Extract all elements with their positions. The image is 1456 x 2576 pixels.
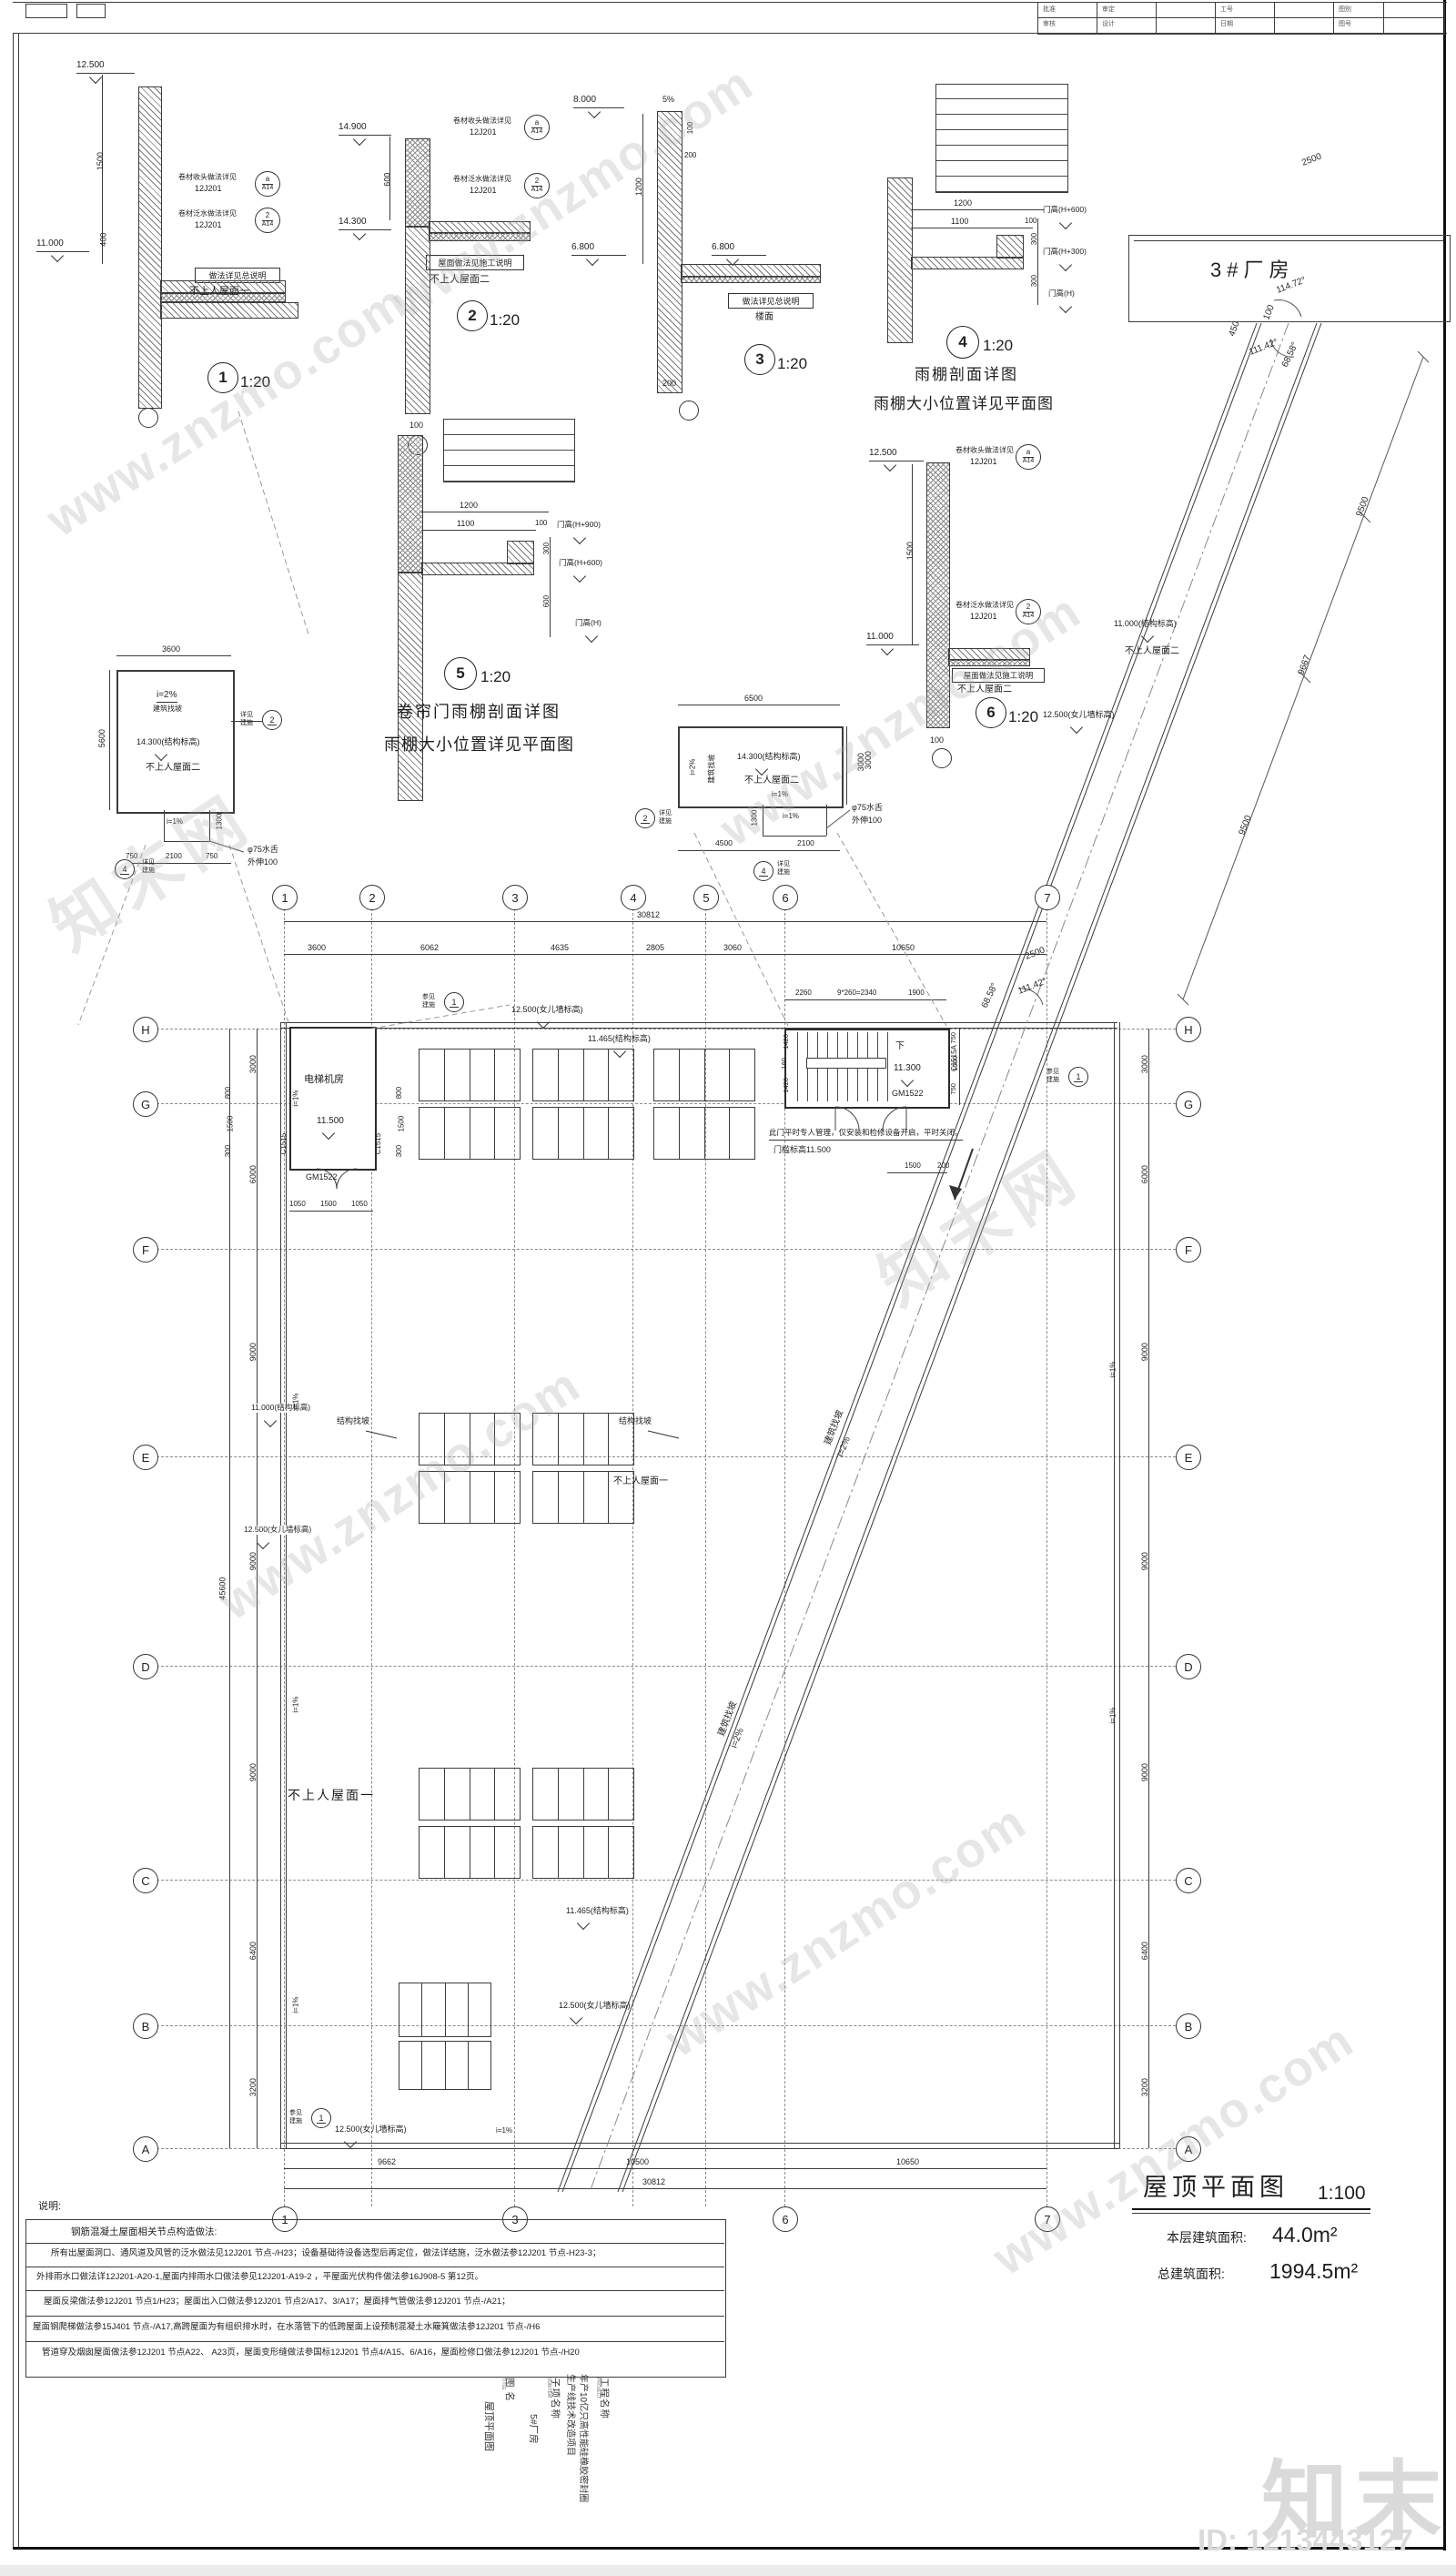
see-num: 2 <box>268 715 276 725</box>
door-tag: GM1522 <box>306 1172 338 1182</box>
dim: 6062 <box>420 943 439 952</box>
grid-label: H <box>141 1023 149 1037</box>
ref-bot: A14 <box>531 186 542 194</box>
wall-section <box>657 111 682 393</box>
grid-bubble-Cr: C <box>1176 1868 1201 1893</box>
dim: 1300 <box>750 810 758 827</box>
skylight <box>419 1471 521 1524</box>
door-note: 此门平时专人管理，仅安装和检修设备开启，平时关闭。 <box>769 1129 963 1141</box>
grid-label: 7 <box>1044 891 1050 905</box>
level-value: 14.900 <box>339 122 367 133</box>
stair-handrail <box>806 1058 886 1069</box>
skylight <box>419 1107 521 1160</box>
dim: 300 <box>1030 233 1038 245</box>
louver-wall <box>935 84 1068 193</box>
detail-ref-bubble: aA14 <box>1016 444 1041 470</box>
corridor-slope-val: i=2% <box>836 1435 853 1458</box>
drawing-sheet: 批准 审定 工号 图别 审核 设计 日期 图号 <box>0 0 1456 2576</box>
spout-label: 外伸100 <box>852 816 882 825</box>
spout-label: φ75水舌 <box>248 845 278 854</box>
detail-number: 1 <box>207 362 238 393</box>
dim: 100 <box>409 421 423 430</box>
detail-ref-bubble: aA14 <box>255 171 280 197</box>
drawing-title: 屋顶平面图 <box>1143 2174 1289 2202</box>
detail-see-bubble: 1 <box>1068 1067 1088 1087</box>
detail-number: 3 <box>744 344 775 375</box>
slope-value: i=1% <box>783 812 799 820</box>
dim: 9*260=2340 <box>837 989 876 997</box>
notes-subtitle: 钢筋混凝土屋面相关节点构造做法: <box>71 2226 217 2237</box>
line <box>421 512 549 512</box>
slope-value: i=1% <box>772 790 788 798</box>
see-arch: 建施 <box>777 869 790 877</box>
skylight <box>419 1826 521 1879</box>
level-mark-icon <box>1059 217 1072 229</box>
skylight <box>419 1049 521 1101</box>
level-mark-icon <box>573 532 586 544</box>
slope-value: i=1% <box>1108 1708 1117 1724</box>
parapet-wall <box>280 1022 281 2148</box>
note-text: 屋面做法见施工说明 <box>438 257 511 269</box>
line <box>712 255 766 256</box>
roof-label: 不上人屋面一 <box>189 286 249 298</box>
detail-see-bubble: 1 <box>444 992 464 1012</box>
parapet-wall <box>1119 1022 1120 2148</box>
level-mark-icon <box>1141 630 1154 643</box>
factory-label: 3#厂房 <box>1210 259 1294 281</box>
level-mark-icon <box>1059 300 1072 313</box>
callout-ref: 12J201 <box>195 220 222 229</box>
slope-label: 建筑找坡 <box>707 755 715 784</box>
see-arch: 详见 <box>240 712 253 719</box>
titleblock-label-en: TITLE <box>500 2378 506 2390</box>
corridor-parapet: 12.500(女儿墙标高) <box>1043 710 1115 719</box>
grid-bubble-Br: B <box>1176 2013 1201 2039</box>
grid-bubble-6: 6 <box>773 885 798 910</box>
roof-label: 不上人屋面二 <box>957 685 1012 695</box>
project-name: 生产线技术改造项目 <box>565 2374 579 2456</box>
elevator-room <box>289 1027 377 1171</box>
axis-bubble <box>679 401 699 421</box>
grid-bubble-E: E <box>133 1445 158 1470</box>
corridor-width-dim: 2500 <box>1300 151 1323 167</box>
dim: 3060 <box>723 943 742 952</box>
dim: 100 <box>1025 217 1036 225</box>
header-label: 批准 <box>1043 6 1056 14</box>
level-value: 14.300(结构标高) <box>737 752 801 761</box>
detail-see-bubble: 4 <box>753 861 773 881</box>
skylight <box>653 1049 755 1101</box>
detail-scale: 1:20 <box>1008 708 1038 726</box>
dim: 6500 <box>744 694 763 703</box>
parapet-section <box>398 435 423 573</box>
detail-scale: 1:20 <box>480 668 511 686</box>
dim: 300 <box>1030 275 1038 287</box>
watermark-brand: 知末网 <box>856 1121 1097 1323</box>
see-num: 4 <box>120 865 128 875</box>
see-arch: 详见 <box>142 859 155 867</box>
grid-bubble-Gr: G <box>1176 1091 1201 1117</box>
level-mark-icon <box>537 1016 550 1029</box>
dim-line <box>284 2168 1046 2169</box>
dim: 750 <box>206 852 217 860</box>
skylight <box>532 1049 634 1101</box>
grid-label: A <box>142 2143 150 2156</box>
grid-label: E <box>1185 1451 1193 1465</box>
dim: 200 <box>937 1161 949 1170</box>
struct-level: 11.465(结构标高) <box>588 1034 651 1043</box>
axis-bubble <box>138 408 158 428</box>
grid-label: E <box>142 1451 150 1465</box>
grid-bubble-6b: 6 <box>773 2206 798 2232</box>
ref-top: a <box>266 176 269 184</box>
ref-bot: A14 <box>1023 612 1034 620</box>
header-label: 设计 <box>1102 21 1115 28</box>
title-strip-box <box>76 4 106 18</box>
wall-section <box>887 177 913 343</box>
grid-bubble-Dr: D <box>1176 1654 1201 1679</box>
grid-label: 2 <box>369 891 375 905</box>
dim: 1100 <box>951 217 968 226</box>
grid-line <box>157 1880 1176 1881</box>
dim: 1900 <box>908 989 925 997</box>
grid-label: F <box>142 1243 149 1257</box>
dim: 1200 <box>634 177 643 196</box>
see-arch: 建施 <box>240 720 253 727</box>
grid-label: 7 <box>1044 2213 1050 2226</box>
detail-num-text: 1 <box>218 369 227 387</box>
dim-total: 30812 <box>637 910 660 919</box>
wall-section <box>138 86 162 409</box>
dim: 9000 <box>248 1552 258 1570</box>
roof-slab <box>948 659 1030 666</box>
door-height-level: 门高(H+900) <box>557 521 601 530</box>
dim: 6000 <box>1140 1165 1149 1183</box>
dim: 3000 <box>856 753 865 771</box>
dim-line <box>229 1029 230 2148</box>
line <box>866 644 919 645</box>
slope-value: i=1% <box>291 1394 299 1410</box>
detail-caption: 雨棚剖面详图 <box>915 366 1018 384</box>
parapet-wall <box>286 1022 287 2148</box>
line <box>164 841 209 842</box>
grid-label: G <box>141 1098 150 1111</box>
detail-see-bubble: 4 <box>115 859 135 879</box>
axis-bubble <box>932 748 952 768</box>
slope-label: 5% <box>662 95 674 104</box>
grid-bubble-7: 7 <box>1035 885 1060 910</box>
line <box>36 251 89 252</box>
skylight <box>532 1826 634 1879</box>
dim: 6400 <box>248 1942 258 1960</box>
dim-line <box>289 1211 373 1212</box>
level-value: 12.500 <box>869 448 897 459</box>
see-arch: 建施 <box>422 1002 435 1009</box>
struct-level: 11.000(结构标高) <box>251 1404 310 1413</box>
see-num: 2 <box>641 814 649 824</box>
canopy-upstand <box>507 541 534 564</box>
level-value: 12.500 <box>76 60 105 71</box>
floor-label: 楼面 <box>755 312 773 323</box>
grid-bubble-G: G <box>133 1091 158 1117</box>
line <box>13 33 14 2549</box>
callout: 卷材泛水做法详见 <box>453 175 511 183</box>
see-arch: 建施 <box>142 867 155 875</box>
slope-value: i=1% <box>167 817 183 826</box>
floor-area-value: 44.0m² <box>1272 2223 1338 2246</box>
dim: 1500 <box>320 1200 337 1208</box>
dim: 3000 <box>1140 1055 1149 1073</box>
grid-label: 4 <box>630 891 636 905</box>
see-arch: 详见 <box>777 861 790 868</box>
header-label: 工号 <box>1220 6 1233 14</box>
sill-level: 门槛标高11.500 <box>773 1145 831 1154</box>
slope-value: i=1% <box>291 1997 299 2013</box>
dim: 3600 <box>308 943 326 952</box>
angle-label: 111.42° <box>1016 977 1048 997</box>
level-value: 11.300 <box>894 1063 921 1074</box>
see-arch: 参见 <box>1046 1069 1059 1076</box>
wall-section <box>926 462 950 728</box>
skylight <box>419 1768 521 1820</box>
wall-section <box>398 572 423 801</box>
ref-bot: A14 <box>1023 457 1034 465</box>
slope-value: i=1% <box>291 1090 299 1107</box>
grid-label: D <box>1184 1660 1192 1674</box>
detail-see-bubble: 2 <box>635 808 655 828</box>
level-mark-icon <box>344 2135 357 2148</box>
see-arch: 建施 <box>659 818 672 826</box>
notes-line: 屋面反梁做法参12J201 节点1/H23；屋面出入口做法参12J201 节点2… <box>44 2297 511 2307</box>
grid-label: F <box>1185 1243 1192 1257</box>
grid-bubble-5: 5 <box>693 885 719 910</box>
detail-num-text: 3 <box>755 350 763 369</box>
dim: 9000 <box>248 1343 258 1361</box>
callout-ref: 12J201 <box>195 184 222 193</box>
callout-ref: 12J201 <box>470 127 497 137</box>
louver-wall <box>443 419 575 482</box>
callout: 卷材泛水做法详见 <box>955 601 1014 609</box>
total-area-label: 总建筑面积: <box>1158 2267 1225 2281</box>
parapet-wall <box>280 1028 1117 1029</box>
dim-line <box>284 921 1046 922</box>
door-height-level: 门高(H) <box>1048 289 1075 299</box>
detail-caption: 雨棚大小位置详见平面图 <box>874 395 1054 413</box>
dim: 1500 <box>397 1116 405 1132</box>
slope-label: 结构找坡 <box>619 1416 652 1425</box>
dim: 300 <box>224 1145 232 1157</box>
level-value: 14.300 <box>339 217 367 228</box>
dim: 1420 <box>783 1034 791 1050</box>
canopy-slab <box>911 257 1024 269</box>
detail-number: 2 <box>457 300 488 331</box>
struct-level: 11.465(结构标高) <box>566 1906 629 1915</box>
dim: 6000 <box>248 1165 258 1183</box>
detail-scale: 1:20 <box>777 355 807 373</box>
dim: 600 <box>542 595 551 607</box>
door-height-level: 门高(H+600) <box>559 559 602 568</box>
door-height-level: 门高(H+300) <box>1043 248 1087 257</box>
detail-caption: 卷帘门雨棚剖面详图 <box>397 703 561 722</box>
dim: 3000 <box>248 1055 258 1073</box>
callout: 卷材收头做法详见 <box>178 173 237 181</box>
parapet-level: 12.500(女儿墙标高) <box>244 1526 311 1535</box>
skylight <box>653 1107 755 1160</box>
parapet-level: 12.500(女儿墙标高) <box>511 1005 583 1014</box>
door-height-level: 门高(H+600) <box>1043 206 1087 215</box>
corridor-slope-label: 建筑找坡 <box>822 1408 845 1446</box>
grid-line <box>157 1666 1176 1667</box>
watermark: www.znzmo.com <box>655 1793 1036 2068</box>
line <box>826 805 827 836</box>
level-mark-icon <box>257 1536 269 1549</box>
see-num: 1 <box>317 2114 325 2124</box>
dim-line <box>887 1172 947 1173</box>
skylight <box>399 2041 491 2090</box>
angle-label: 68.58° <box>980 981 1000 1009</box>
see-arch: 详见 <box>659 810 672 817</box>
grid-line <box>157 1456 1176 1457</box>
grid-bubble-F: F <box>133 1237 158 1263</box>
titleblock-label-en: SUBITEM <box>546 2378 551 2398</box>
line <box>573 107 624 108</box>
bottom-strip <box>0 2565 1456 2576</box>
ref-top: a <box>1026 449 1030 457</box>
roof-slab <box>160 302 298 319</box>
dim: 800 <box>395 1087 403 1099</box>
line <box>911 209 1044 210</box>
dim: 100 <box>930 735 944 745</box>
detail-ref-bubble: 2A14 <box>1016 599 1041 624</box>
detail-ref-bubble: aA14 <box>524 115 550 140</box>
dim: 4635 <box>551 943 569 952</box>
header-label: 图号 <box>1339 21 1351 28</box>
line <box>846 726 847 805</box>
see-num: 1 <box>1074 1072 1082 1082</box>
floor-area-label: 本层建筑面积: <box>1167 2230 1247 2245</box>
line <box>678 705 840 705</box>
dim: 300 <box>542 543 551 554</box>
dim: 1050 <box>351 1200 368 1208</box>
see-arch: 参见 <box>289 2110 302 2117</box>
dim-line <box>1148 1029 1149 2148</box>
level-value: 14.300(结构标高) <box>136 737 200 746</box>
dim: 600 <box>382 173 391 187</box>
dim: 4500 <box>715 839 733 848</box>
detail-scale: 1:20 <box>983 337 1013 355</box>
header-table <box>1037 2 1445 35</box>
header-label: 日期 <box>1220 21 1233 28</box>
level-value: 6.800 <box>571 242 594 253</box>
drawing-scale: 1:100 <box>1318 2183 1366 2205</box>
detail-scale: 1:20 <box>490 311 520 330</box>
dim: 9000 <box>248 1763 258 1781</box>
slope-value: i=1% <box>1108 1362 1117 1378</box>
room-label: 电梯机房 <box>304 1074 344 1086</box>
dim: 400 <box>98 233 107 247</box>
line <box>571 255 626 256</box>
dim: 1050 <box>289 1200 306 1208</box>
callout: 卷材收头做法详见 <box>955 446 1014 454</box>
grid-label: D <box>141 1660 149 1674</box>
dim-line <box>784 999 946 1000</box>
line <box>339 135 391 136</box>
grid-label: 5 <box>703 891 709 905</box>
grid-bubble-Hr: H <box>1176 1017 1201 1042</box>
slope-value: i=2% <box>688 759 696 776</box>
note-box: 屋面做法见施工说明 <box>952 668 1045 683</box>
line <box>1132 2208 1370 2210</box>
roof-label: 不上人屋面二 <box>430 274 490 286</box>
grid-bubble-D: D <box>133 1654 158 1679</box>
grid-bubble-B: B <box>133 2013 158 2039</box>
level-value: 11.000 <box>36 238 64 249</box>
spout-label: 外伸100 <box>248 857 278 867</box>
dim-total: 30812 <box>642 2177 665 2186</box>
dim: 200 <box>662 379 676 388</box>
line <box>869 461 924 461</box>
project-name: 年产10亿只高性能硅橡胶密封圈 <box>578 2374 591 2502</box>
detail-scale: 1:20 <box>240 373 270 391</box>
dim: 750 <box>950 1083 958 1095</box>
level-mark-icon <box>577 1917 590 1930</box>
grid-line <box>157 1249 1176 1250</box>
level-value: 11.500 <box>317 1116 344 1127</box>
roof-label-big: 不上人屋面一 <box>288 1788 375 1802</box>
floor-slab <box>681 276 821 283</box>
dim-line <box>284 2188 1046 2189</box>
parapet-wall <box>280 2148 1119 2149</box>
angle-label: 68.58° <box>1280 340 1300 369</box>
parapet-wall <box>1114 1022 1115 2148</box>
dim: 750 <box>950 1032 958 1044</box>
ref-bot: A14 <box>262 220 273 228</box>
dim: 3200 <box>248 2078 258 2096</box>
header-label: 图别 <box>1339 6 1351 14</box>
line <box>209 810 210 841</box>
callout-ref: 12J201 <box>970 457 997 466</box>
dim: 2260 <box>795 989 812 997</box>
detail-see-bubble: 2 <box>262 710 282 730</box>
see-num: 1 <box>450 998 458 1008</box>
level-mark-icon <box>570 2012 582 2024</box>
notes-line: 所有出屋面洞口、通风道及风管的泛水做法见12J201 节点-/H23；设备基础待… <box>51 2249 601 2259</box>
header-label: 审核 <box>1043 21 1056 28</box>
subproject-name: 5#厂房 <box>527 2414 541 2444</box>
grid-bubble-1: 1 <box>272 885 298 910</box>
note-text: 屋面做法见施工说明 <box>964 670 1034 681</box>
dim: 3200 <box>1140 2078 1149 2096</box>
slope-value: i=1% <box>496 2126 512 2135</box>
parapet-wall <box>280 1022 1117 1023</box>
skylight <box>419 1413 521 1465</box>
line <box>116 863 231 864</box>
line <box>1443 0 1446 2551</box>
dim-450: 450 <box>1228 319 1242 338</box>
grid-label: 1 <box>281 891 288 905</box>
dim: 160 <box>781 1058 789 1070</box>
line <box>763 836 826 837</box>
grid-label: H <box>1184 1023 1192 1037</box>
dim: 2805 <box>646 943 664 952</box>
detail-number: 6 <box>976 697 1006 728</box>
grid-label: B <box>1185 2020 1193 2033</box>
detail-number: 5 <box>444 657 477 690</box>
dim: 9000 <box>1140 1552 1149 1570</box>
skylight <box>399 1983 491 2037</box>
dim: 1200 <box>954 198 972 208</box>
grid-bubble-Ar: A <box>1176 2136 1201 2162</box>
